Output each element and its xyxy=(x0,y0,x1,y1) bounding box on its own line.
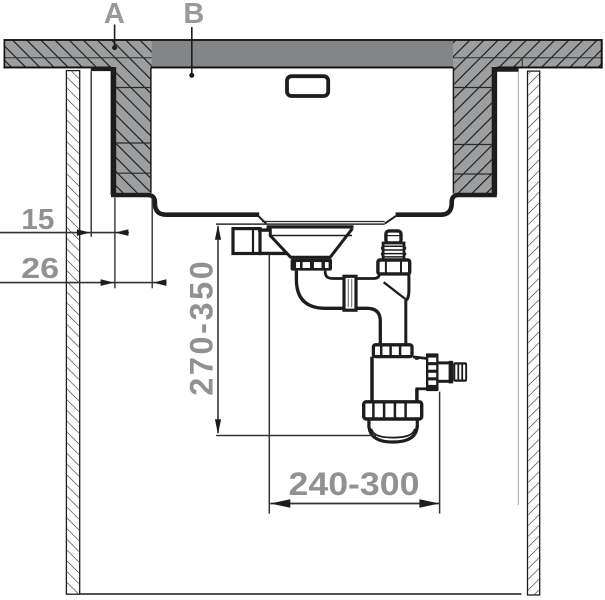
svg-text:15: 15 xyxy=(21,204,54,236)
svg-text:26: 26 xyxy=(21,253,59,285)
svg-text:240-300: 240-300 xyxy=(289,465,420,502)
svg-text:270-350: 270-350 xyxy=(184,259,220,396)
svg-text:B: B xyxy=(183,0,204,30)
